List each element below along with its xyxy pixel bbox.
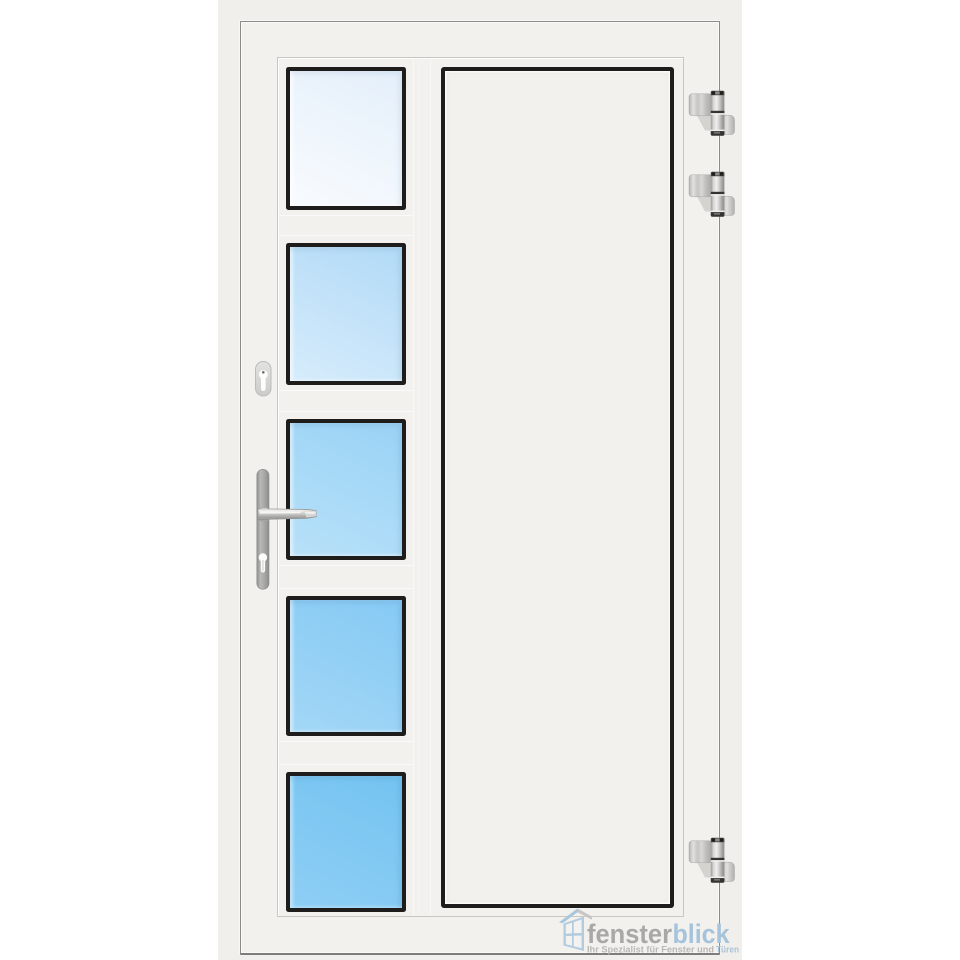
svg-text:Türen: Türen xyxy=(716,944,739,955)
svg-text:Ihr Spezialist für Fenster und: Ihr Spezialist für Fenster und xyxy=(587,944,714,955)
